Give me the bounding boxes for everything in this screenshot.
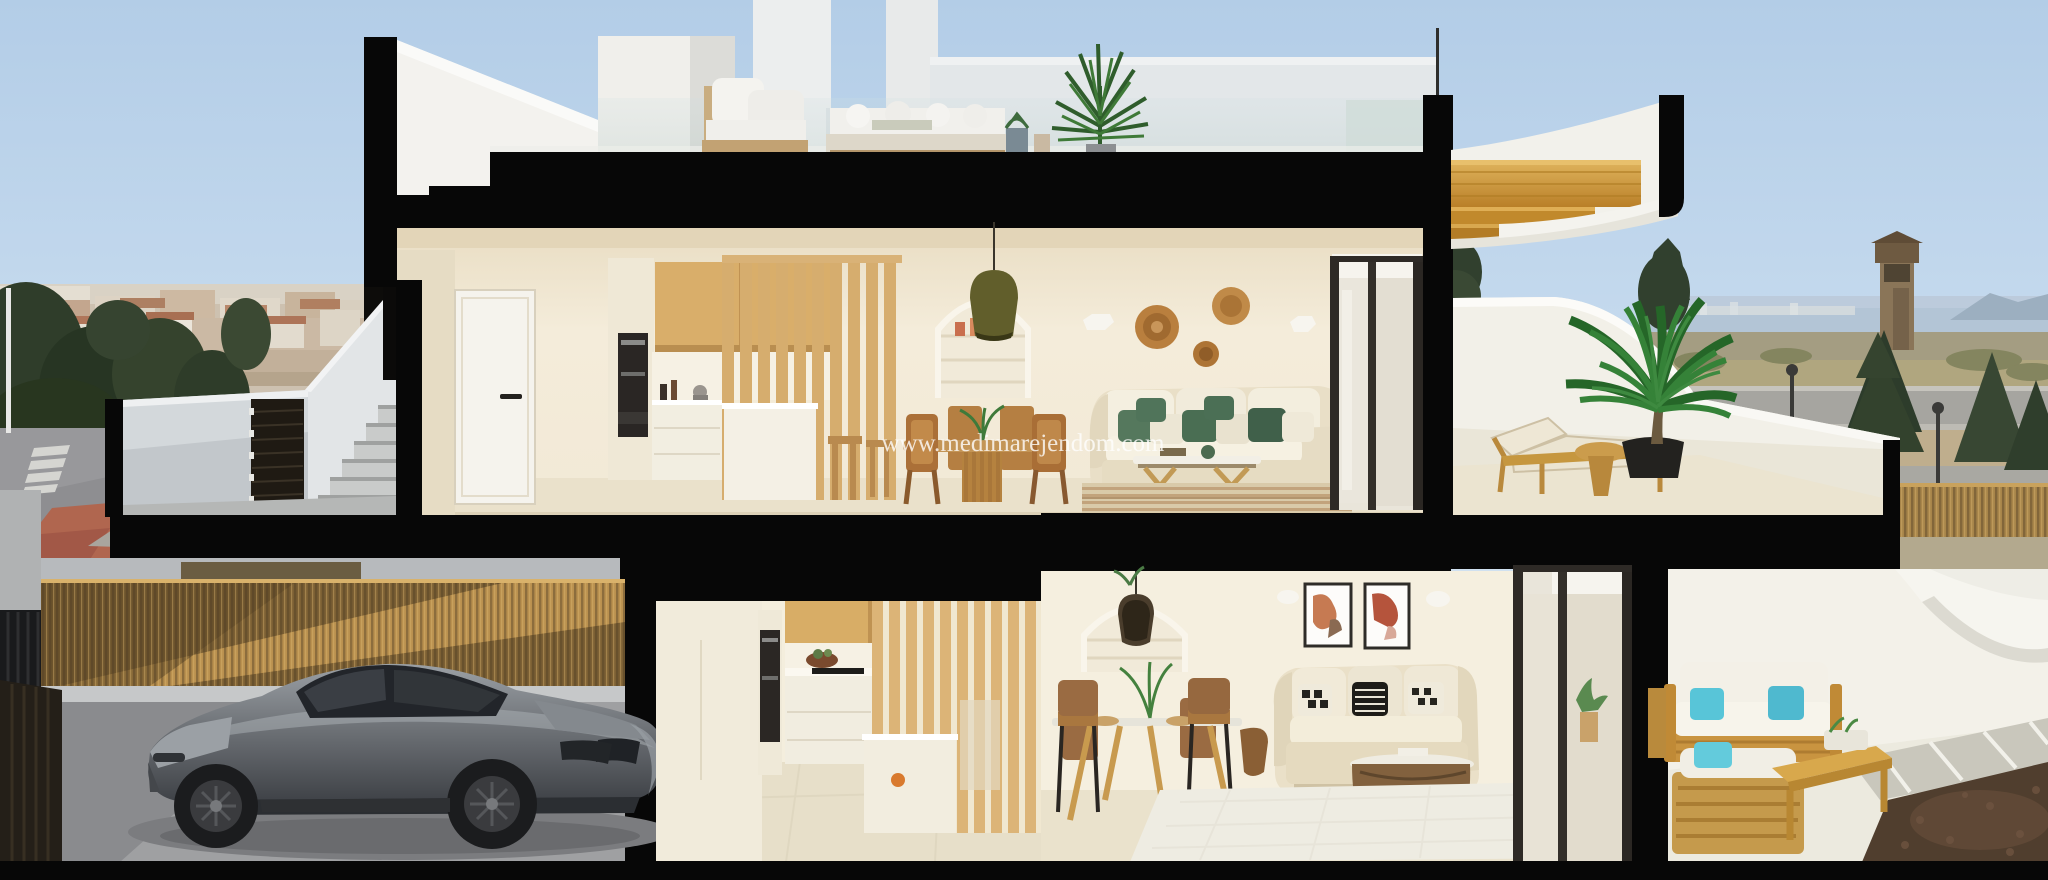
- svg-text:www.medimarejendom.com: www.medimarejendom.com: [881, 430, 1165, 457]
